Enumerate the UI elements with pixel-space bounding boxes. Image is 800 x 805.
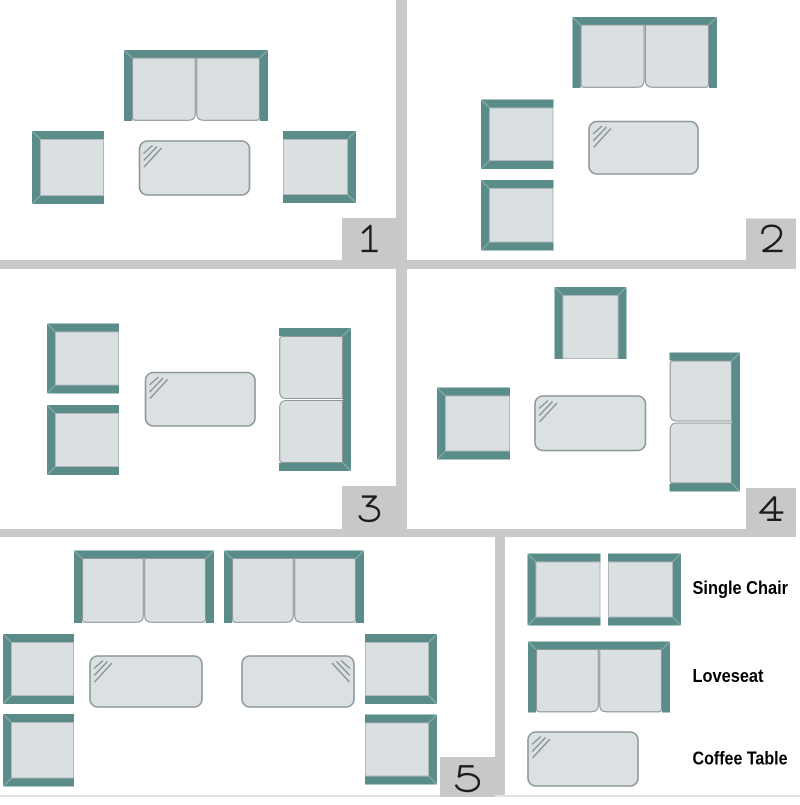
svg-text:Coffee Table: Coffee Table xyxy=(693,748,788,769)
svg-text:Single Chair: Single Chair xyxy=(693,577,789,598)
svg-text:Loveseat: Loveseat xyxy=(693,665,764,686)
